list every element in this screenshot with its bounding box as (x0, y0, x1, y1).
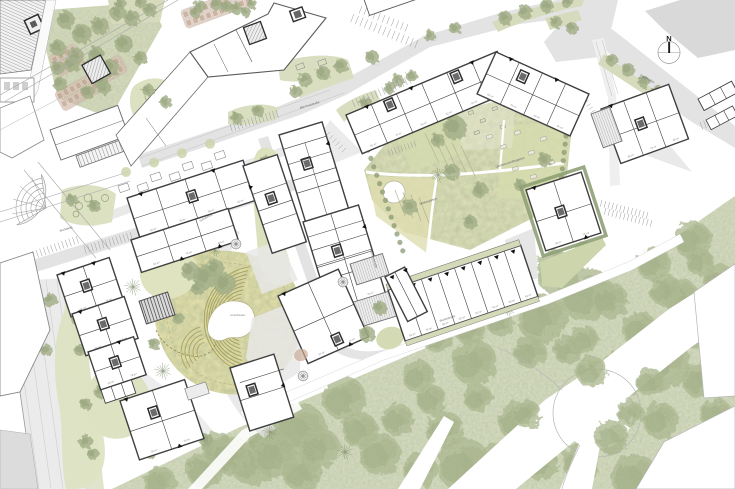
svg-text:N: N (666, 34, 671, 43)
svg-text:Amphitheater: Amphitheater (230, 313, 246, 317)
